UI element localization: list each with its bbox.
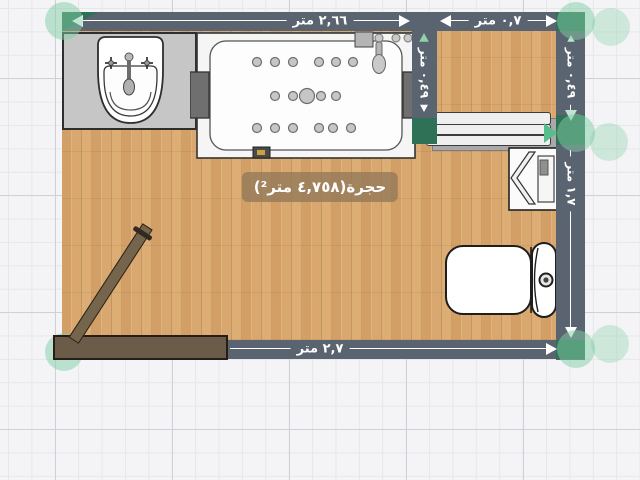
dim-line — [230, 348, 547, 349]
sink[interactable] — [62, 32, 197, 130]
dimension-label-niche: ٠,٧ متر — [469, 13, 528, 30]
dim-line — [83, 20, 408, 21]
door-handle-icon — [132, 226, 152, 242]
corner-handle[interactable] — [45, 2, 83, 40]
dimension-label-inner-wall: ٠,٤٩ متر — [416, 42, 433, 105]
dimension-label-right-lower: ١,٧ متر — [563, 156, 580, 211]
corner-handle[interactable] — [557, 114, 595, 152]
dimension-label-right-upper: ٠,٤٩ متر — [563, 42, 580, 105]
soap-tray — [355, 32, 373, 47]
toilet-seat — [446, 246, 531, 314]
wall-junction-arrow-icon — [544, 123, 557, 143]
dimension-label-bottom: ٢,٧ متر — [291, 341, 350, 358]
plan-canvas: ٢,٦٦ متر ٠,٧ متر ٠,٤٩ متر ٠,٤٩ متر ١,٧ م… — [0, 0, 640, 480]
tap-handle-icon — [145, 61, 150, 66]
dim-arrow-right-icon — [546, 343, 557, 355]
corner-handle[interactable] — [591, 325, 629, 363]
room-area-label: حجرة(٤,٧٥٨ متر²) — [242, 172, 398, 202]
corner-handle[interactable] — [592, 8, 630, 46]
corner-handle[interactable] — [557, 330, 595, 368]
bathtub[interactable] — [190, 28, 422, 160]
heater-control — [540, 160, 548, 175]
water-heater[interactable] — [508, 144, 560, 214]
corner-handle[interactable] — [590, 123, 628, 161]
dim-arrow-right-icon — [399, 15, 410, 27]
dim-arrow-right-icon — [546, 15, 557, 27]
headrest — [190, 72, 209, 118]
dim-arrow-left-icon — [440, 15, 451, 27]
shelf-bar — [426, 124, 551, 135]
corner-handle[interactable] — [557, 2, 595, 40]
dimension-label-top: ٢,٦٦ متر — [287, 13, 354, 30]
tap-handle-icon — [109, 61, 114, 66]
toilet[interactable] — [444, 242, 558, 318]
wall-corner-highlight — [412, 118, 437, 144]
faucet-icon — [125, 53, 133, 61]
